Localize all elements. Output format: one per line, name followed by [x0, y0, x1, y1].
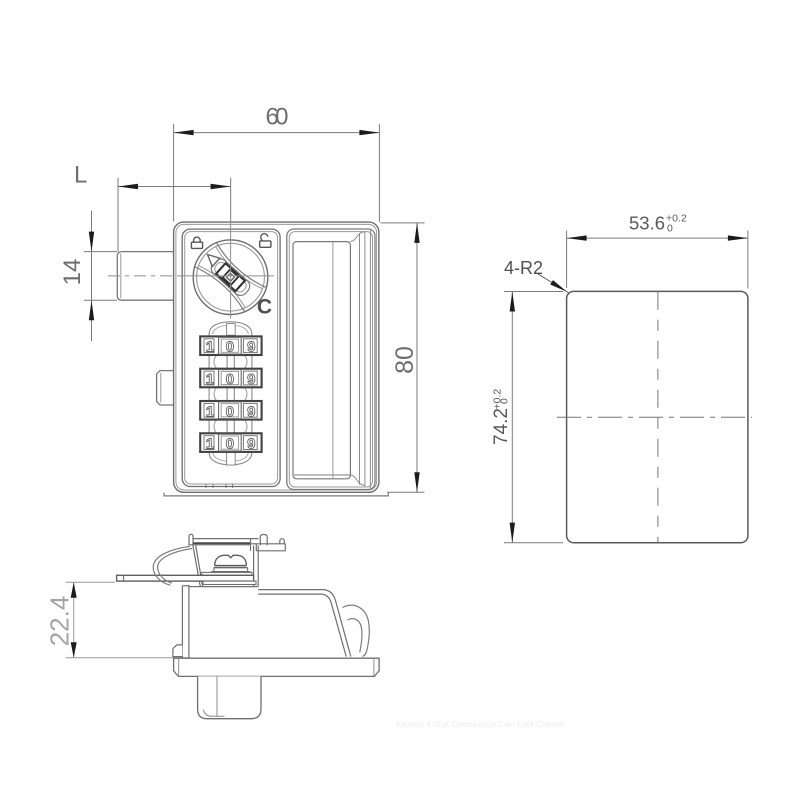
svg-text:0: 0: [499, 398, 511, 404]
svg-text:22.4: 22.4: [45, 596, 75, 647]
svg-text:C: C: [257, 296, 272, 319]
svg-text:60: 60: [266, 104, 289, 131]
svg-text:Keyless 4 Digit Combination Ca: Keyless 4 Digit Combination Cam Lock Cab…: [396, 720, 565, 729]
svg-text:14: 14: [59, 259, 86, 286]
svg-text:80: 80: [391, 346, 419, 374]
svg-text:L: L: [74, 162, 87, 189]
svg-text:74.2: 74.2: [491, 408, 512, 445]
svg-text:53.6: 53.6: [629, 213, 665, 234]
svg-text:4-R2: 4-R2: [504, 258, 543, 278]
svg-text:0: 0: [667, 223, 673, 235]
